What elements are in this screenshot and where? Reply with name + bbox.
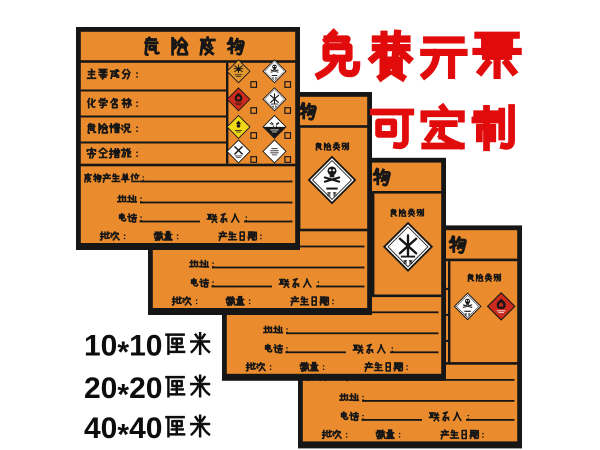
svg-text:40*40: 40*40 bbox=[84, 412, 162, 450]
